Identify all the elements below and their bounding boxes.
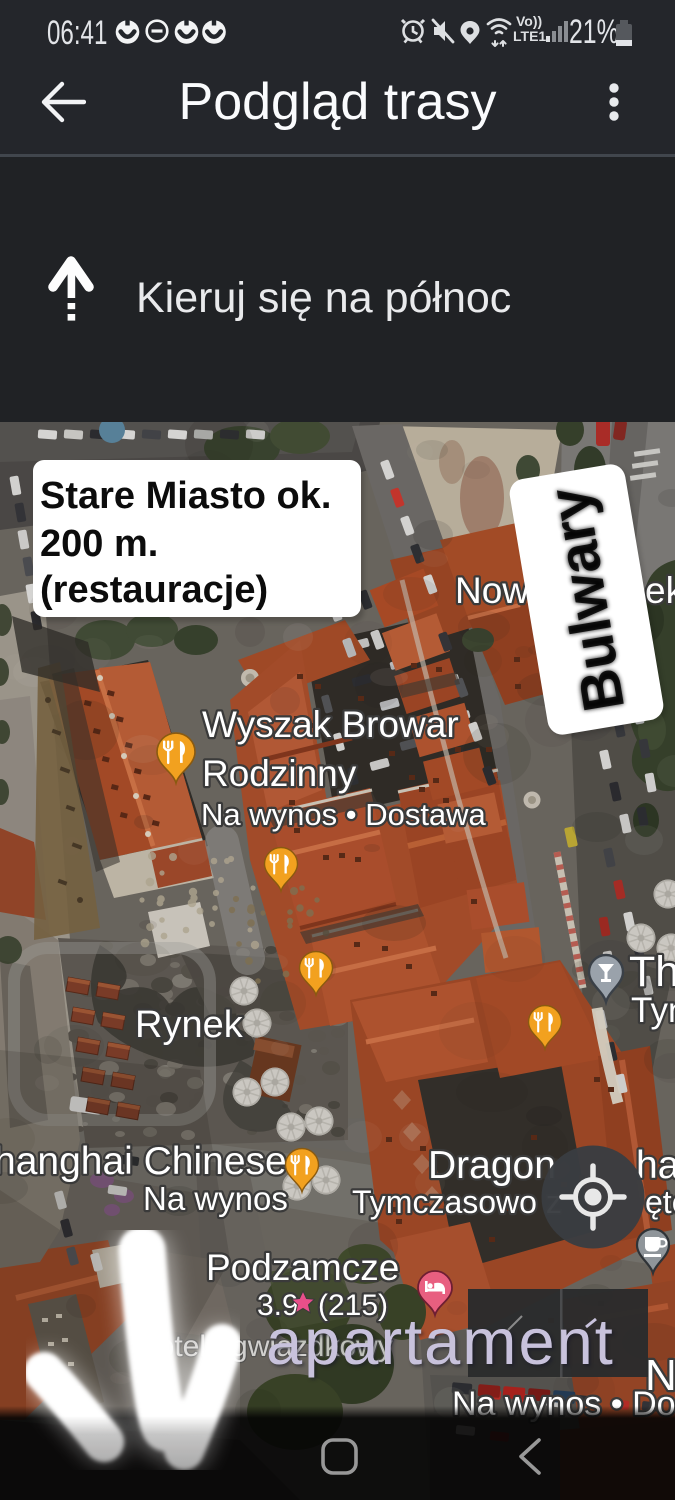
svg-text:Stare Miasto ok.: Stare Miasto ok.	[40, 475, 331, 517]
svg-text:Wyszak Browar: Wyszak Browar	[202, 704, 459, 745]
svg-text:21%: 21%	[569, 13, 619, 51]
svg-text:hanghai Chinese: hanghai Chinese	[0, 1140, 287, 1183]
svg-text:Vo)): Vo))	[516, 13, 542, 29]
svg-text:Rodzinny: Rodzinny	[202, 753, 357, 794]
svg-text:Dragon: Dragon	[428, 1144, 556, 1187]
svg-text:LTE1: LTE1	[513, 28, 546, 44]
svg-text:ek: ek	[645, 570, 675, 611]
svg-text:Tyn: Tyn	[631, 991, 675, 1030]
svg-text:Na wynos • Dostawa: Na wynos • Dostawa	[201, 797, 487, 832]
svg-text:ęte: ęte	[645, 1184, 675, 1220]
svg-text:N: N	[645, 1351, 675, 1400]
svg-text:ha: ha	[636, 1144, 675, 1187]
svg-text:Now: Now	[455, 570, 529, 611]
svg-text:Th: Th	[629, 948, 675, 996]
svg-text:Tymczasowo z: Tymczasowo z	[352, 1184, 562, 1220]
svg-text:200 m.: 200 m.	[40, 523, 158, 565]
svg-text:Rynek: Rynek	[135, 1004, 244, 1046]
svg-text:(restauracje): (restauracje)	[40, 569, 268, 611]
